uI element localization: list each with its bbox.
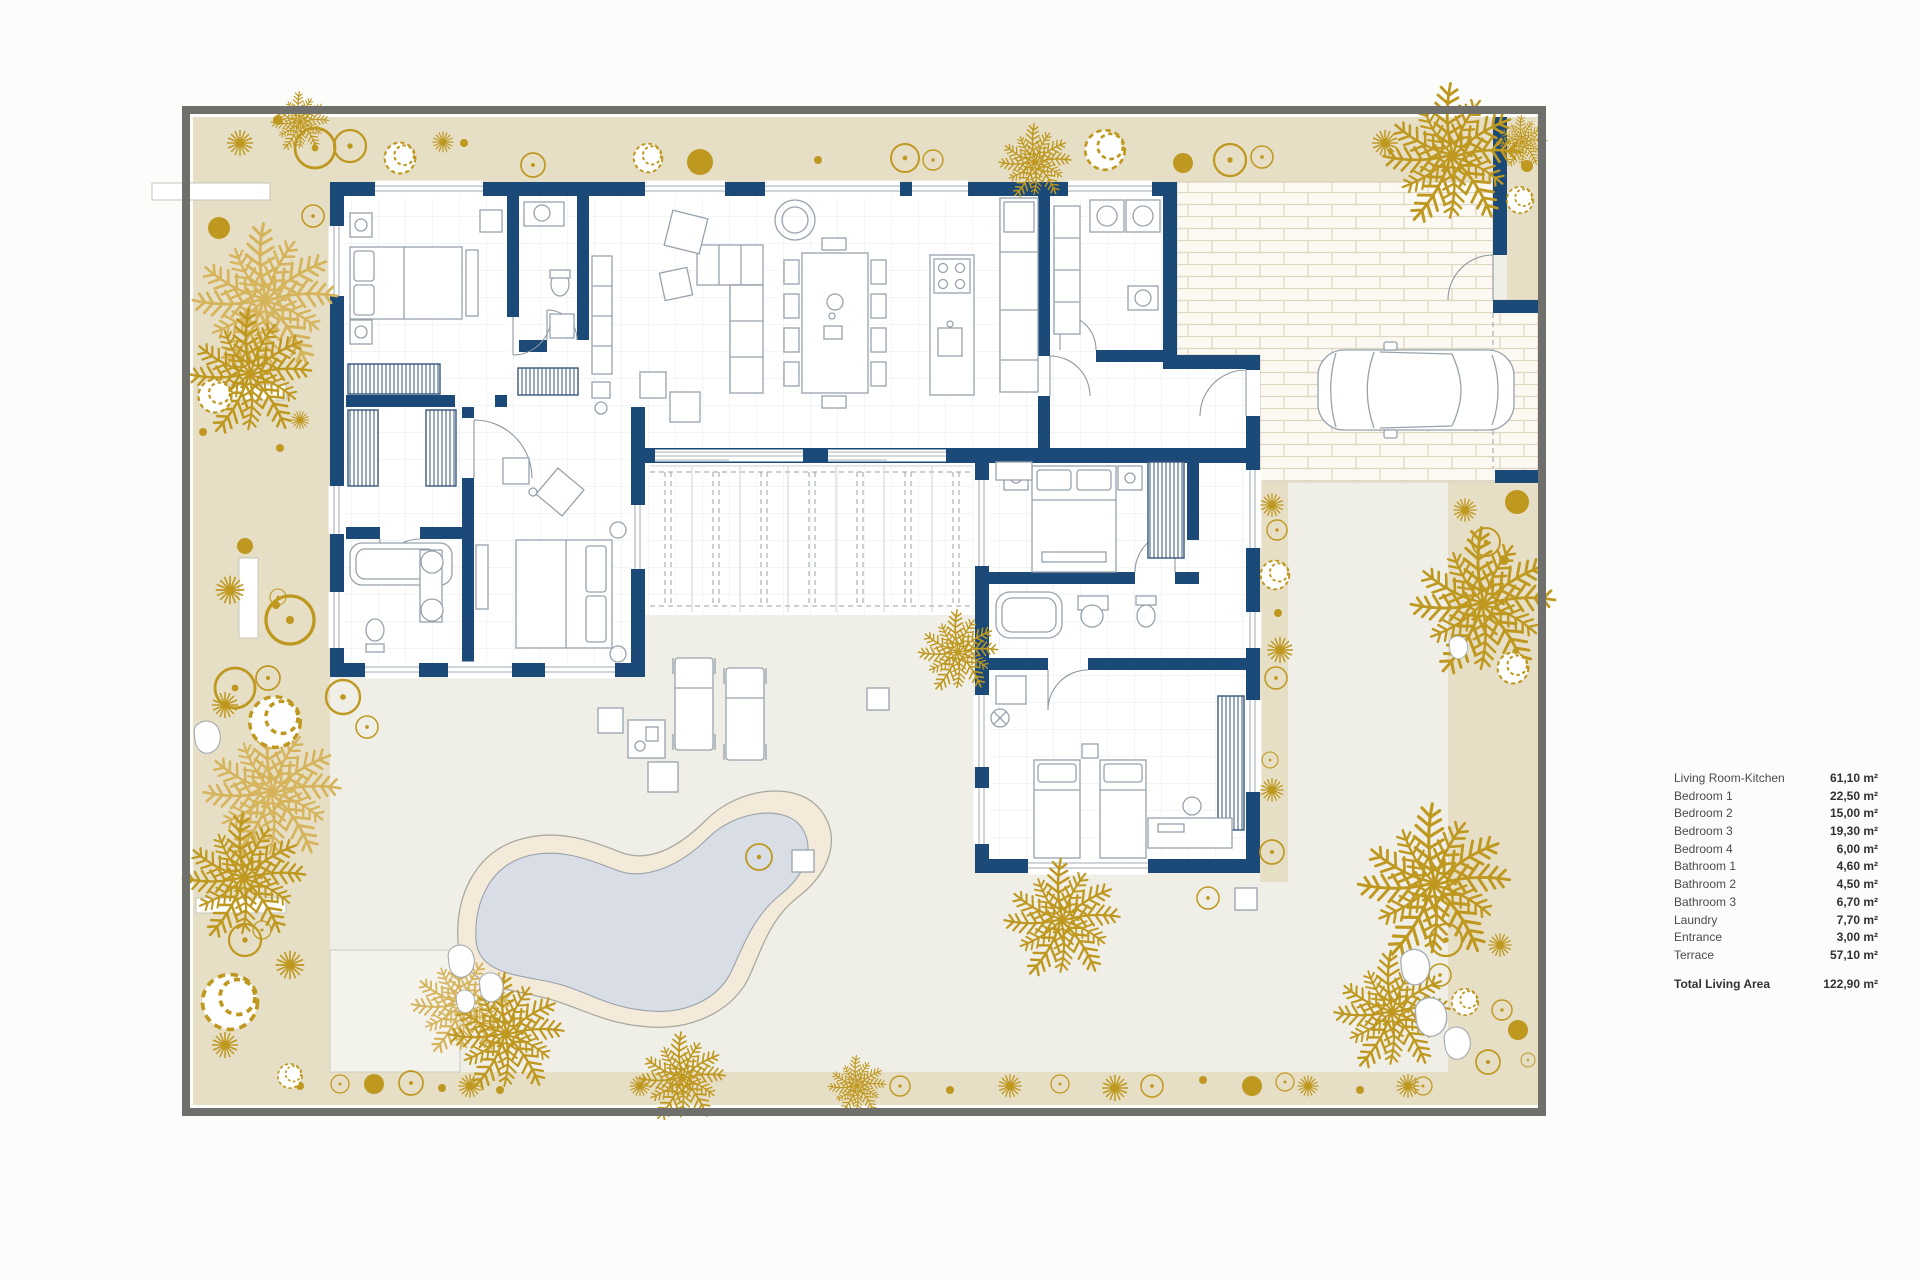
room-area: 4,50 m² bbox=[1837, 877, 1878, 891]
legend-row: Living Room-Kitchen61,10 m² bbox=[1674, 771, 1878, 789]
shrub-dot-icon bbox=[273, 115, 283, 125]
floor-plan-page: Living Room-Kitchen61,10 m² Bedroom 122,… bbox=[0, 0, 1920, 1280]
room-area: 6,70 m² bbox=[1837, 895, 1878, 909]
bush-icon bbox=[1261, 561, 1290, 590]
rock-icon bbox=[480, 973, 504, 1002]
rock-icon bbox=[194, 721, 220, 753]
shrub-dot-icon bbox=[687, 149, 713, 175]
legend-total-row: Total Living Area122,90 m² bbox=[1674, 977, 1878, 991]
shrub-dot-icon bbox=[1356, 1086, 1364, 1094]
shrub-dot-icon bbox=[1199, 1076, 1207, 1084]
sun-lounger-icon bbox=[673, 658, 715, 750]
shrub-dot-icon bbox=[1499, 555, 1509, 565]
rock-icon bbox=[1444, 1027, 1470, 1059]
shrub-dot-icon bbox=[438, 1084, 446, 1092]
room-area: 19,30 m² bbox=[1830, 824, 1878, 838]
room-area: 6,00 m² bbox=[1837, 842, 1878, 856]
shrub-dot-icon bbox=[1505, 490, 1529, 514]
shrub-dot-icon bbox=[496, 1086, 504, 1094]
shrub-dot-icon bbox=[814, 156, 822, 164]
shrub-dot-icon bbox=[199, 428, 207, 436]
legend-row: Bathroom 14,60 m² bbox=[1674, 859, 1878, 877]
room-area: 22,50 m² bbox=[1830, 789, 1878, 803]
bush-icon bbox=[278, 1064, 302, 1088]
rock-icon bbox=[448, 945, 474, 977]
room-area: 7,70 m² bbox=[1837, 913, 1878, 927]
room-area: 15,00 m² bbox=[1830, 806, 1878, 820]
bush-icon bbox=[1085, 130, 1125, 170]
shrub-dot-icon bbox=[946, 1086, 954, 1094]
hall-shelving bbox=[592, 256, 612, 414]
floor-plan-drawing bbox=[0, 0, 1920, 1280]
room-label: Bedroom 4 bbox=[1674, 842, 1733, 856]
bush-icon bbox=[1507, 187, 1533, 213]
shrub-dot-icon bbox=[237, 538, 253, 554]
area-legend: Living Room-Kitchen61,10 m² Bedroom 122,… bbox=[1674, 771, 1878, 991]
room-label: Bathroom 1 bbox=[1674, 859, 1736, 873]
room-label: Bedroom 1 bbox=[1674, 789, 1733, 803]
legend-row: Laundry7,70 m² bbox=[1674, 913, 1878, 931]
bush-icon bbox=[203, 975, 258, 1030]
bush-icon bbox=[199, 380, 232, 413]
rock-icon bbox=[1415, 998, 1446, 1037]
car-icon bbox=[1318, 342, 1514, 438]
total-label: Total Living Area bbox=[1674, 977, 1770, 991]
rock-icon bbox=[1401, 949, 1430, 984]
bush-icon bbox=[634, 144, 663, 173]
terrace-pergola bbox=[645, 463, 975, 615]
room-label: Laundry bbox=[1674, 913, 1717, 927]
legend-row: Bedroom 215,00 m² bbox=[1674, 806, 1878, 824]
total-area: 122,90 m² bbox=[1823, 977, 1878, 991]
shrub-dot-icon bbox=[208, 217, 230, 239]
room-label: Bedroom 2 bbox=[1674, 806, 1733, 820]
room-area: 57,10 m² bbox=[1830, 948, 1878, 962]
room-label: Bedroom 3 bbox=[1674, 824, 1733, 838]
shrub-dot-icon bbox=[1508, 1020, 1528, 1040]
bush-icon bbox=[1452, 989, 1478, 1015]
bush-icon bbox=[1498, 653, 1529, 684]
shrub-dot-icon bbox=[272, 601, 280, 609]
legend-row: Terrace57,10 m² bbox=[1674, 948, 1878, 966]
legend-row: Bathroom 24,50 m² bbox=[1674, 877, 1878, 895]
room-label: Living Room-Kitchen bbox=[1674, 771, 1785, 785]
bush-icon bbox=[385, 143, 416, 174]
room-area: 3,00 m² bbox=[1837, 930, 1878, 944]
shrub-dot-icon bbox=[364, 1074, 384, 1094]
sun-lounger-icon bbox=[724, 668, 766, 760]
shrub-dot-icon bbox=[1242, 1076, 1262, 1096]
patio-table bbox=[628, 720, 665, 758]
room-area: 4,60 m² bbox=[1837, 859, 1878, 873]
room-label: Terrace bbox=[1674, 948, 1714, 962]
room-label: Bathroom 3 bbox=[1674, 895, 1736, 909]
room-label: Entrance bbox=[1674, 930, 1722, 944]
legend-row: Bathroom 36,70 m² bbox=[1674, 895, 1878, 913]
shrub-dot-icon bbox=[1274, 609, 1282, 617]
room-label: Bathroom 2 bbox=[1674, 877, 1736, 891]
rock-icon bbox=[456, 990, 474, 1012]
legend-row: Bedroom 319,30 m² bbox=[1674, 824, 1878, 842]
room-area: 61,10 m² bbox=[1830, 771, 1878, 785]
rock-icon bbox=[1449, 636, 1467, 658]
shrub-dot-icon bbox=[1173, 153, 1193, 173]
shrub-dot-icon bbox=[276, 444, 284, 452]
legend-row: Entrance3,00 m² bbox=[1674, 930, 1878, 948]
shrub-dot-icon bbox=[460, 139, 468, 147]
legend-row: Bedroom 46,00 m² bbox=[1674, 842, 1878, 860]
legend-row: Bedroom 122,50 m² bbox=[1674, 789, 1878, 807]
shrub-dot-icon bbox=[1521, 160, 1533, 172]
bush-icon bbox=[250, 697, 301, 748]
